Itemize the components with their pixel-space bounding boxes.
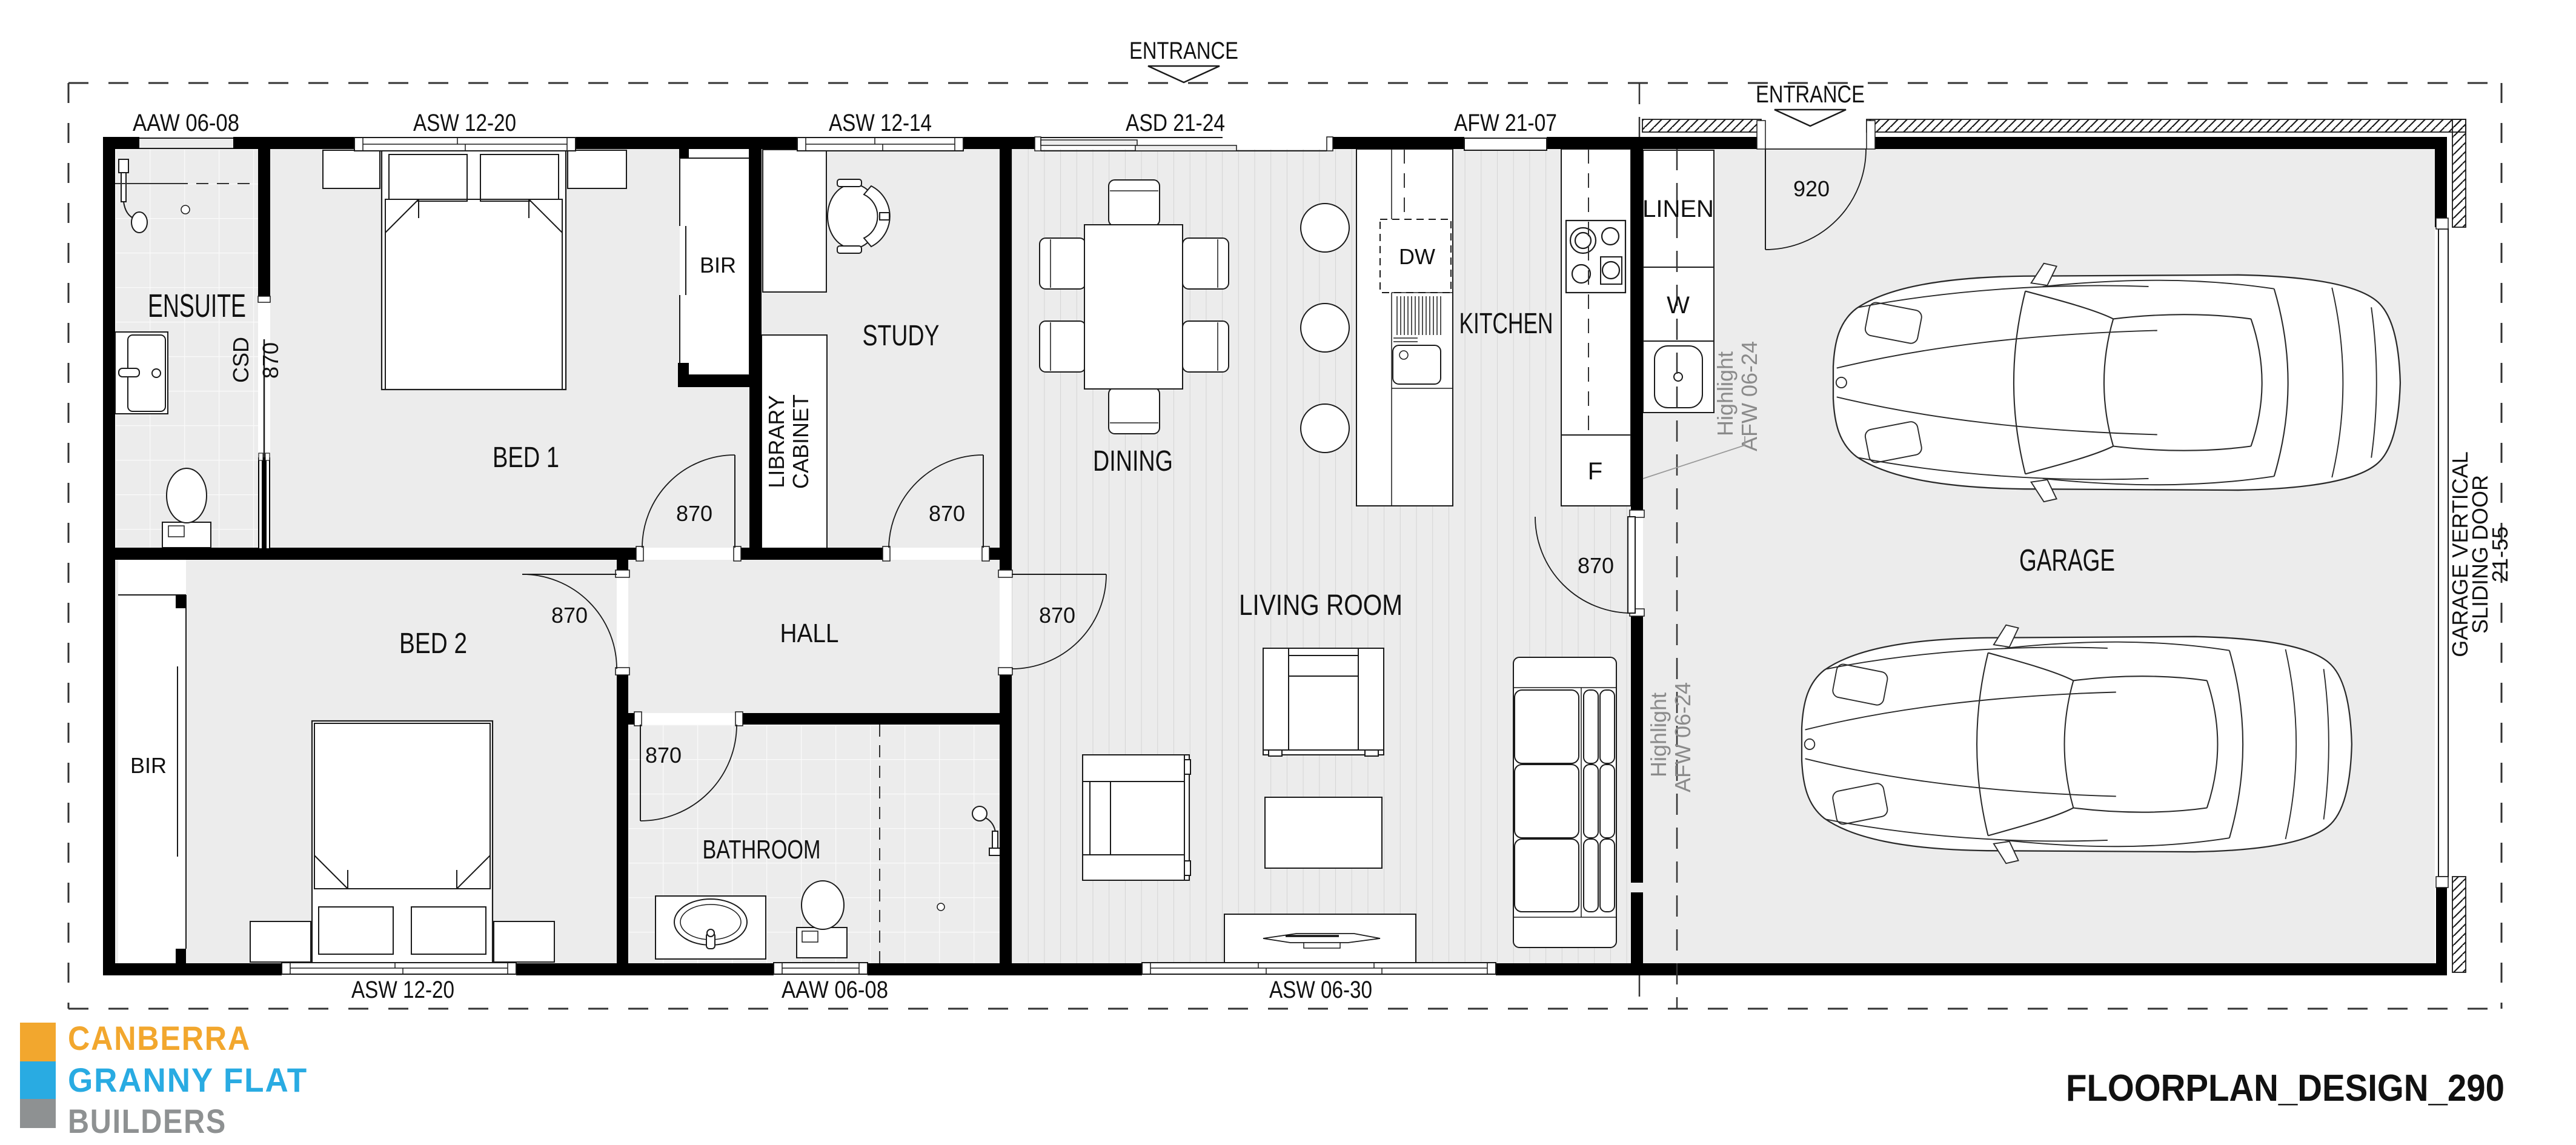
svg-text:W: W [1667,292,1690,319]
svg-text:21-55: 21-55 [2488,526,2512,582]
svg-text:AFW 06-24: AFW 06-24 [1737,341,1762,451]
svg-text:ASD 21-24: ASD 21-24 [1126,110,1225,136]
svg-text:FLOORPLAN_DESIGN_290: FLOORPLAN_DESIGN_290 [2066,1067,2505,1109]
svg-text:STUDY: STUDY [863,320,940,352]
svg-text:LINEN: LINEN [1642,196,1714,222]
svg-text:870: 870 [1578,553,1614,578]
svg-text:870: 870 [551,603,588,628]
svg-text:BUILDERS: BUILDERS [68,1102,227,1140]
svg-text:GRANNY FLAT: GRANNY FLAT [68,1061,308,1099]
svg-text:870: 870 [1039,603,1075,628]
svg-text:DINING: DINING [1093,445,1173,477]
svg-text:HALL: HALL [780,619,839,648]
svg-text:BIR: BIR [130,753,167,778]
svg-text:BIR: BIR [700,253,736,277]
svg-text:ENTRANCE: ENTRANCE [1756,81,1865,108]
svg-text:CABINET: CABINET [788,394,813,489]
svg-text:ASW 12-20: ASW 12-20 [413,110,516,136]
svg-text:ASW 06-30: ASW 06-30 [1269,977,1372,1003]
svg-text:LIBRARY: LIBRARY [764,395,789,488]
svg-text:870: 870 [645,743,682,768]
svg-text:920: 920 [1793,176,1830,201]
svg-text:AAW 06-08: AAW 06-08 [133,110,239,136]
svg-text:CANBERRA: CANBERRA [68,1019,251,1057]
svg-text:Highlight: Highlight [1713,351,1738,436]
svg-text:AAW 06-08: AAW 06-08 [782,977,888,1003]
svg-text:CSD: CSD [228,337,253,383]
svg-text:BED 2: BED 2 [399,628,467,660]
svg-text:GARAGE: GARAGE [2019,543,2115,577]
svg-text:ENTRANCE: ENTRANCE [1129,38,1238,64]
svg-text:F: F [1588,458,1602,485]
svg-text:BATHROOM: BATHROOM [703,835,821,865]
svg-text:ASW 12-20: ASW 12-20 [351,977,454,1003]
svg-text:AFW 21-07: AFW 21-07 [1454,110,1557,136]
svg-text:AFW 06-24: AFW 06-24 [1670,682,1695,792]
svg-text:DW: DW [1399,244,1435,269]
svg-text:ASW 12-14: ASW 12-14 [829,110,932,136]
svg-text:BED 1: BED 1 [493,442,559,474]
svg-text:ENSUITE: ENSUITE [148,288,246,324]
svg-text:LIVING ROOM: LIVING ROOM [1239,589,1403,622]
svg-text:KITCHEN: KITCHEN [1459,308,1553,340]
svg-text:870: 870 [258,342,283,379]
svg-text:Highlight: Highlight [1646,692,1671,777]
svg-text:870: 870 [929,501,965,526]
svg-text:870: 870 [676,501,712,526]
